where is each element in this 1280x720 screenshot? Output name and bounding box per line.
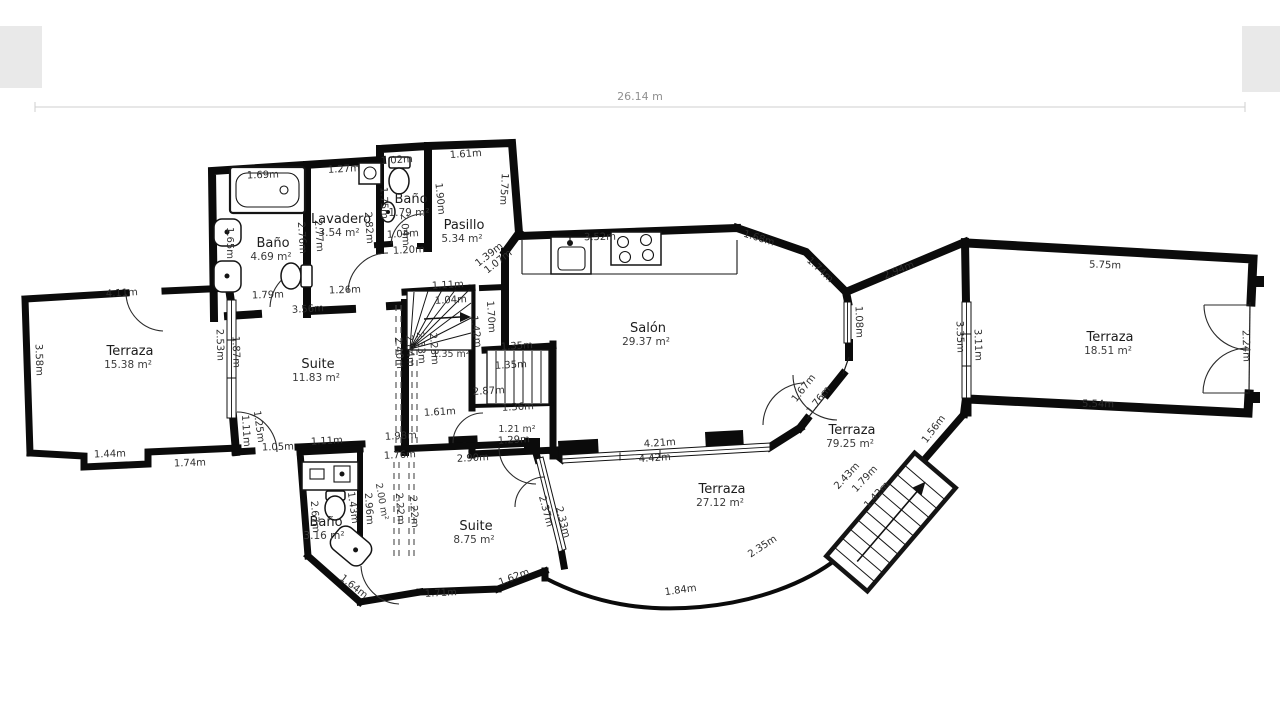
room-name-label: Baño [256, 236, 289, 251]
dimension-label: 3.56m [292, 303, 325, 316]
dimension-label: 1.98m [385, 430, 418, 443]
stove-icon [611, 232, 661, 265]
dimension-label: 1.61m [424, 406, 457, 419]
overall-dimension: 26.14 m [35, 90, 1245, 112]
dimension-label: 1.75m [497, 173, 510, 206]
dimension-label: 1.69m [247, 169, 279, 181]
floor-plan-canvas: 26.14 m [0, 0, 1280, 720]
room-area-label: 1.21 m² [498, 424, 535, 435]
dimension-label: 3.58m [32, 344, 44, 376]
overall-dimension-label: 26.14 m [617, 90, 663, 103]
room-area-label: 29.37 m² [622, 336, 670, 348]
dimension-label: 1.71m [425, 587, 458, 600]
dimension-label: 4.11m [106, 287, 139, 300]
room-area-label: 27.12 m² [696, 497, 744, 509]
room-name-label: Terraza [106, 344, 154, 359]
dimension-label: 2.23m [427, 332, 440, 365]
dimension-label: 1.11m [311, 435, 344, 448]
room-name-label: Suite [459, 519, 492, 534]
room-area-label: 79.25 m² [826, 438, 874, 450]
dimension-label: 1.29m [498, 434, 531, 447]
dimension-label: 3.52m [584, 232, 616, 244]
dimension-label: 5.75m [1089, 259, 1121, 271]
dimension-label: 1.35m [495, 359, 528, 372]
dimension-label: 3.35m [953, 321, 965, 353]
dimension-label: 1.87m [229, 336, 241, 368]
dimension-label: 2.90m [457, 452, 490, 465]
dimension-label: 1.75m [377, 187, 389, 219]
dimension-label: 2.22m [393, 492, 406, 525]
scan-artifacts [0, 26, 1280, 92]
dimension-label: 2.82m [362, 211, 375, 244]
dimension-label: 2.84m [403, 334, 416, 367]
dimension-label: 1.27m [328, 163, 361, 176]
dimension-label: 1.36m [502, 401, 535, 414]
room-name-label: Suite [301, 357, 334, 372]
room-name-label: Baño [394, 192, 427, 207]
dimension-label: 2.53m [414, 331, 427, 364]
dimension-label: 1.70m [484, 300, 497, 333]
room-area-label: 5.34 m² [441, 233, 482, 245]
dimension-label: 1.11m [432, 279, 465, 292]
dimension-label: 2.77m [312, 219, 325, 252]
floor-plan-page: 26.14 m [0, 0, 1280, 720]
dimension-label: 1.65m [224, 227, 235, 259]
dimension-label: 1.04m [387, 228, 420, 241]
dimension-label: 5.54m [1082, 399, 1114, 411]
room-area-label: 18.51 m² [1084, 345, 1132, 357]
dimension-label: 4.42m [638, 452, 671, 465]
dimension-label: 2.22m [407, 495, 420, 528]
dimension-label: 1.74m [174, 457, 206, 469]
room-area-label: 3.16 m² [303, 530, 344, 542]
dimension-label: 4.21m [643, 437, 676, 450]
dimension-label: 1.05m [262, 441, 294, 453]
room-area-label: 11.83 m² [292, 372, 340, 384]
dimension-label: 2.53m [213, 329, 225, 361]
room-name-label: Terraza [698, 482, 746, 497]
dimension-label: 2.76m [295, 221, 308, 254]
room-name-label: Terraza [1086, 330, 1134, 345]
dimension-label: 1.02m [380, 154, 413, 167]
dimension-label: 1.79m [252, 289, 284, 301]
dimension-label: 1.61m [449, 148, 482, 161]
dimension-label: 1.04m [435, 294, 468, 307]
dimension-label: 3.11m [971, 329, 983, 361]
dimension-label: 1.08m [852, 306, 864, 338]
dimension-label: 1.11m [239, 414, 252, 447]
dimension-label: 2.40m [392, 336, 405, 369]
room-area-label: 4.69 m² [250, 251, 291, 263]
toilet-icon [281, 263, 312, 289]
room-name-label: Salón [630, 321, 666, 336]
dimension-label: 2.87m [473, 385, 506, 398]
dimension-label: 1.76m [384, 449, 417, 462]
dimension-label: 2.96m [362, 492, 375, 525]
vanity-icon [302, 462, 358, 490]
dimension-label: 2.24m [1239, 330, 1251, 362]
dimension-label: 2.67m [308, 500, 321, 533]
dimension-label: 1.26m [329, 284, 361, 296]
room-area-label: 15.38 m² [104, 359, 152, 371]
dimension-label: 1.20m [393, 244, 426, 257]
room-name-label: Terraza [828, 423, 876, 438]
washer-icon [359, 163, 381, 184]
dimension-label: 1.35m [501, 340, 534, 353]
room-name-label: Pasillo [444, 218, 485, 233]
dimension-label: 1.44m [94, 448, 126, 460]
room-area-label: 8.75 m² [453, 534, 494, 546]
